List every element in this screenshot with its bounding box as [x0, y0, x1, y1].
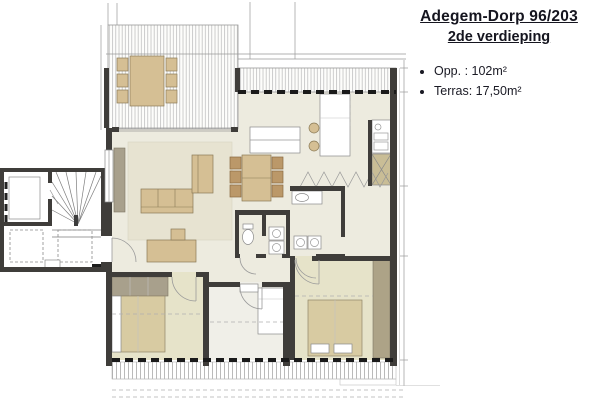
stool: [309, 141, 319, 151]
terrace-top-left: [108, 25, 238, 129]
title-block: Adegem-Dorp 96/203 2de verdieping Opp. :…: [406, 8, 592, 101]
armchair: [192, 155, 213, 193]
plan-title-line2: 2de verdieping: [406, 29, 592, 45]
sink-appliance-column: [372, 120, 391, 153]
screenshot: Adegem-Dorp 96/203 2de verdieping Opp. :…: [0, 0, 600, 400]
washer: [294, 236, 307, 249]
technical-shaft: [372, 154, 391, 185]
double-bed: [112, 296, 165, 352]
fact-terrace: Terras: 17,50m²: [434, 81, 592, 101]
terrace-top-strip: [238, 68, 396, 92]
toilet-tank: [243, 224, 253, 229]
plan-title-line1: Adegem-Dorp 96/203: [406, 8, 592, 26]
wardrobe: [373, 260, 390, 358]
void-room: [10, 230, 92, 262]
stool: [309, 123, 319, 133]
dryer: [308, 236, 321, 249]
terrace-table: [130, 56, 164, 106]
roof-edge-band: [112, 362, 396, 379]
tv-cabinet: [114, 148, 125, 212]
wardrobe: [112, 277, 168, 296]
fact-surface: Opp. : 102m²: [434, 61, 592, 81]
dining-area: [230, 155, 283, 201]
double-bed: [308, 300, 362, 356]
shelf: [240, 284, 258, 292]
stairs: [52, 172, 101, 237]
kitchen-island: [320, 94, 350, 156]
plan-facts-list: Opp. : 102m² Terras: 17,50m²: [406, 61, 592, 101]
sofa: [141, 189, 193, 213]
toilet: [243, 230, 254, 245]
wc: [243, 224, 254, 245]
level-marker: [45, 260, 60, 268]
washbasin: [296, 194, 309, 202]
elevator-car: [9, 177, 40, 219]
